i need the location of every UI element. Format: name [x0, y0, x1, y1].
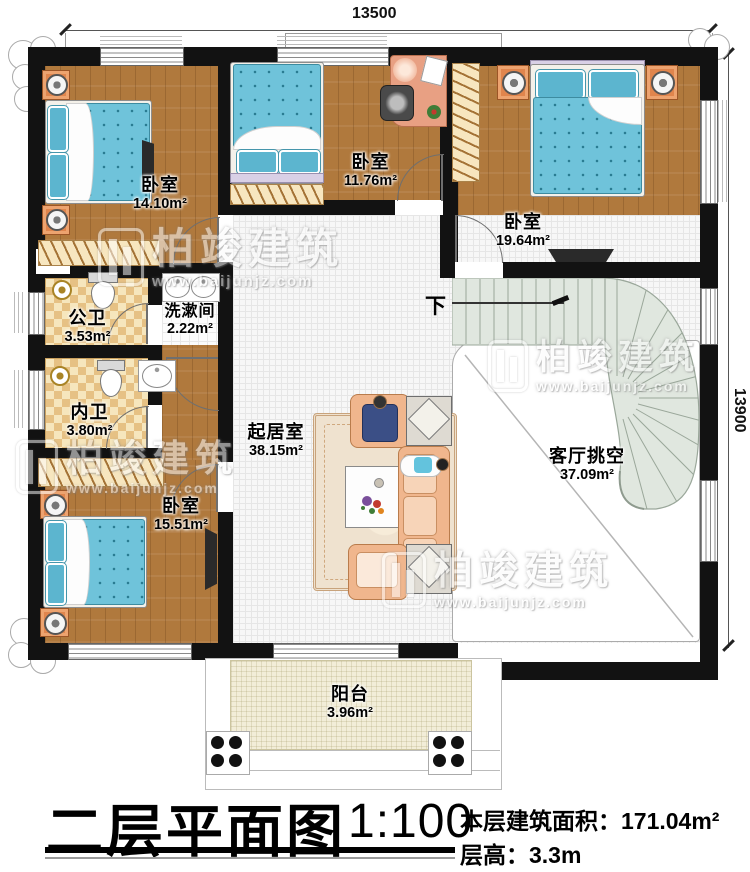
lamp: [651, 71, 675, 95]
door-leaf: [441, 155, 443, 201]
person-shorts: [414, 457, 432, 473]
desk-chair: [380, 85, 414, 121]
person-head: [436, 458, 449, 471]
window: [68, 643, 192, 660]
pillow: [46, 521, 66, 563]
door-opening: [395, 200, 443, 215]
sofa-cushion: [403, 496, 437, 536]
room-label-public-bath: 公卫 3.53m²: [50, 308, 125, 345]
window-sill: [14, 370, 26, 428]
window: [700, 480, 718, 562]
pillow: [589, 70, 638, 99]
wall: [218, 262, 233, 462]
room-label-bedroom-top-left: 卧室 14.10m²: [105, 175, 215, 212]
bed-headboard: [230, 173, 324, 183]
armchair-cushion: [356, 552, 398, 588]
lamp: [502, 71, 526, 95]
table-decor: [374, 478, 384, 488]
room-label-bedroom-top-right: 卧室 19.64m²: [478, 212, 568, 249]
floor-area-text: 本层建筑面积：171.04m²: [460, 802, 719, 836]
room-label-ensuite-bath: 内卫 3.80m²: [52, 402, 127, 439]
room-label-living: 起居室 38.15m²: [233, 422, 319, 459]
person-head: [373, 395, 387, 409]
wall: [440, 262, 455, 278]
wardrobe: [230, 184, 324, 205]
drawing-scale: 1:100: [348, 794, 473, 849]
floor-area-label: 本层建筑面积：: [460, 808, 621, 834]
window-sill: [100, 36, 182, 46]
wardrobe: [38, 240, 160, 266]
floor-plan: 13500 13900: [0, 0, 750, 872]
window: [28, 370, 45, 430]
shower-head: [50, 366, 70, 386]
desk-lamp-glow: [393, 58, 417, 82]
title-underline-thin: [45, 857, 455, 859]
drawing-title: 二层平面图: [46, 786, 346, 868]
door-leaf: [455, 215, 457, 262]
column-dot: [433, 736, 446, 749]
stair-down-label: 下: [425, 290, 446, 320]
floor-height-label: 层高：: [460, 842, 529, 868]
person: [362, 404, 398, 442]
floor-area-value: 171.04m²: [621, 808, 719, 834]
stair-direction-line: [452, 302, 564, 304]
top-dimension-line: [65, 30, 712, 31]
wall: [503, 262, 718, 278]
door-leaf: [146, 304, 148, 344]
plant: [427, 105, 441, 119]
room-label-bedroom-top-mid: 卧室 11.76m²: [328, 152, 413, 189]
sink: [191, 276, 216, 298]
window-sill: [718, 100, 728, 202]
pillow: [279, 150, 320, 174]
pillow: [237, 150, 278, 174]
extension-line: [65, 33, 66, 48]
top-dimension-label: 13500: [352, 5, 397, 23]
pillow: [46, 563, 66, 605]
bed-blanket: [62, 519, 90, 605]
room-label-balcony: 阳台 3.96m²: [302, 684, 398, 721]
window: [100, 47, 184, 66]
pillow: [48, 106, 68, 152]
sink: [142, 364, 172, 388]
right-dimension-line: [728, 55, 729, 648]
window-sill: [277, 36, 387, 46]
tv: [205, 528, 217, 590]
window: [700, 100, 718, 204]
pillow: [48, 153, 68, 199]
shower-head: [52, 280, 72, 300]
lamp: [44, 494, 67, 517]
room-label-bedroom-bottom-left: 卧室 15.51m²: [138, 496, 224, 533]
door-leaf: [146, 406, 148, 448]
lamp: [46, 209, 68, 231]
door-leaf: [166, 357, 218, 359]
door-opening: [148, 405, 162, 448]
door-leaf: [217, 217, 219, 263]
wardrobe: [452, 63, 480, 182]
floor-height-text: 层高：3.3m: [460, 836, 581, 870]
staircase: [452, 278, 702, 528]
lamp: [44, 612, 67, 635]
wall: [28, 345, 162, 358]
window-sill: [14, 292, 26, 333]
lamp: [46, 74, 68, 96]
bed-blanket: [66, 103, 94, 201]
door-opening: [218, 215, 233, 262]
door-opening: [455, 262, 503, 278]
column-dot: [211, 736, 224, 749]
floor-height-value: 3.3m: [529, 842, 581, 868]
right-dimension-label: 13900: [730, 388, 748, 433]
tv: [142, 140, 154, 178]
flower-vase: [362, 496, 372, 506]
window: [700, 288, 718, 345]
tv: [548, 249, 614, 262]
wardrobe: [38, 458, 164, 487]
room-label-void: 客厅挑空 37.09m²: [540, 446, 634, 483]
wall: [148, 278, 162, 305]
pillow: [536, 70, 585, 99]
window: [28, 292, 45, 335]
room-label-washroom: 洗漱间 2.22m²: [158, 303, 222, 338]
sink: [165, 276, 190, 298]
